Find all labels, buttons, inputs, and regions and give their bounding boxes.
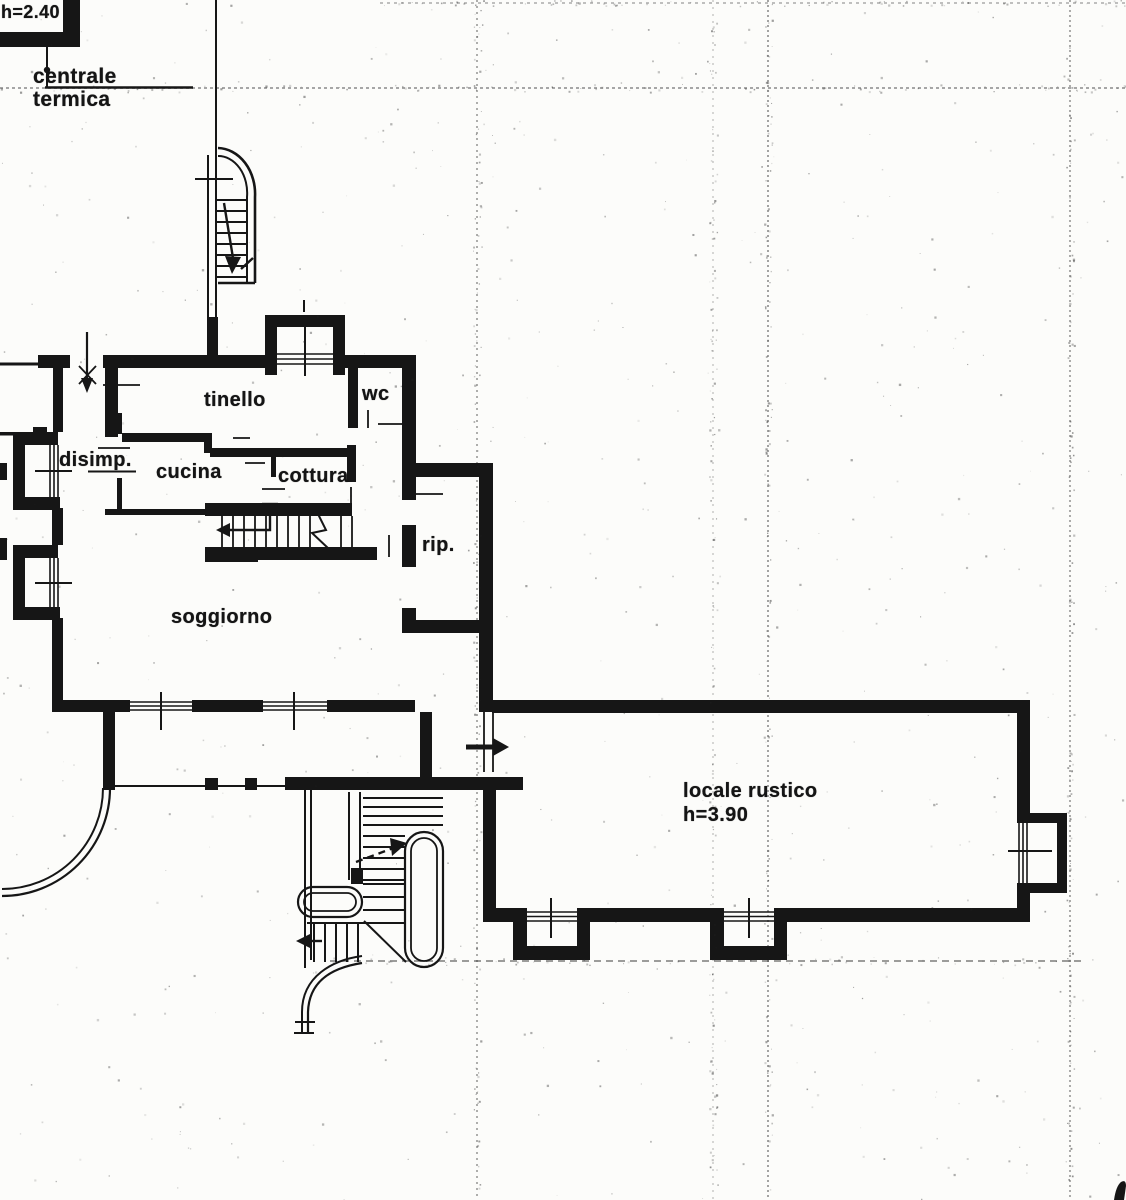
room-label-annex-height: h=2.40 [1,3,60,21]
locale-rustico-entrance [466,712,509,772]
room-label-locale-rustico-height: h=3.90 [683,805,748,825]
room-label-rip: rip. [422,535,455,555]
stair-up-arrowhead [216,523,230,537]
external-stair-bottom [294,790,443,1033]
internal-stair [205,503,377,562]
room-label-cucina: cucina [156,462,222,482]
room-label-locale-rustico: locale rustico [683,781,818,801]
scan-fold-lines [0,0,1126,1200]
entrance-arrowhead [493,738,509,756]
external-stair-top [195,0,255,355]
room-label-centrale: centrale [33,66,117,87]
floor-plan-drawing [0,0,1126,1200]
terrace [2,777,523,896]
room-label-termica: termica [33,89,111,110]
stair-exit-arrowhead [296,934,310,948]
scanner-noise [1,0,1126,1200]
room-label-wc: wc [362,384,389,404]
room-label-soggiorno: soggiorno [171,607,272,627]
floor-plan-canvas: h=2.40 centrale termica tinello wc disim… [0,0,1126,1200]
interior-partitions [105,358,358,515]
room-label-cottura: cottura [278,466,349,486]
entrance-arrowhead [81,378,93,393]
room-label-tinello: tinello [204,390,266,410]
scan-mark [1114,1181,1126,1200]
room-label-disimp: disimp. [59,450,132,470]
